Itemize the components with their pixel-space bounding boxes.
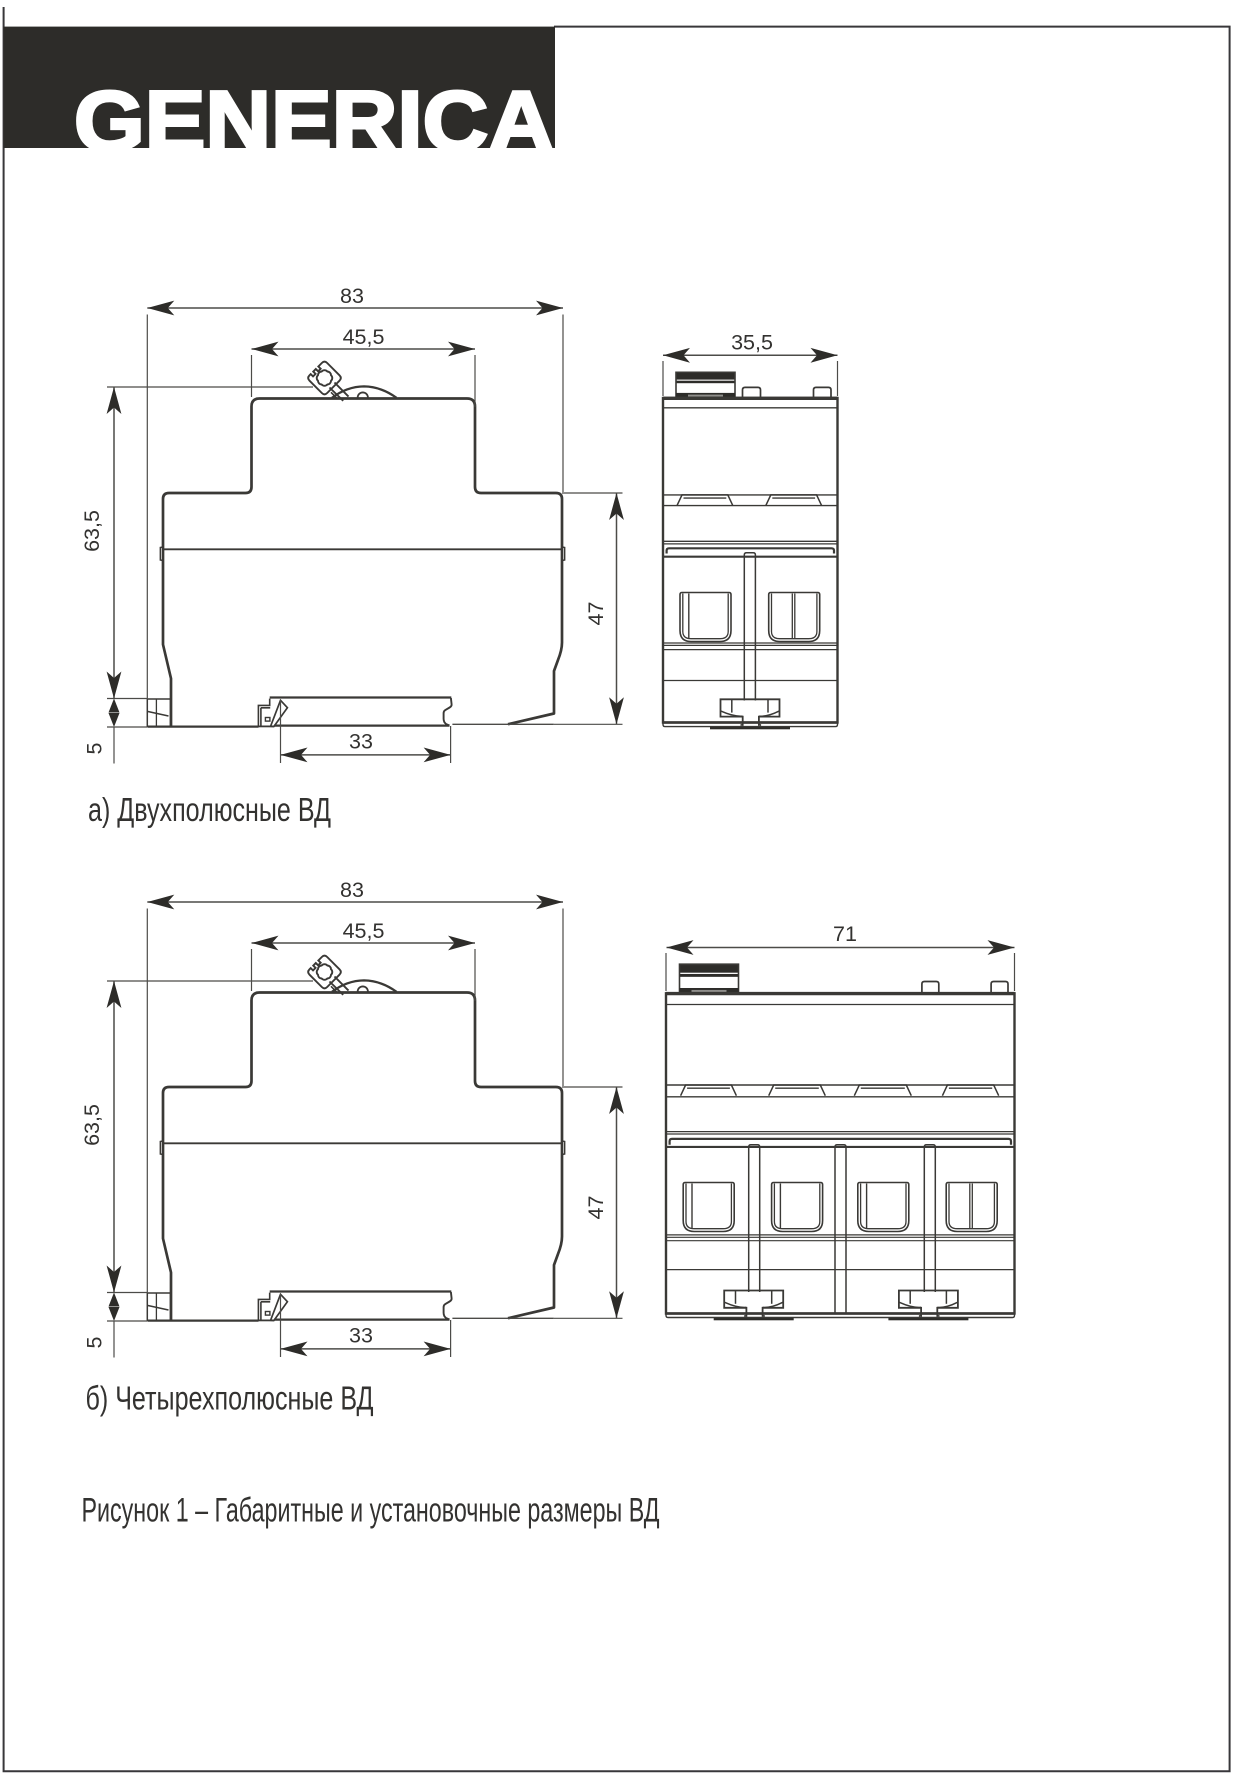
svg-text:GENERICA: GENERICA bbox=[74, 75, 554, 170]
svg-text:71: 71 bbox=[833, 922, 857, 946]
svg-text:а) Двухполюсные ВД: а) Двухполюсные ВД bbox=[88, 791, 331, 828]
svg-text:35,5: 35,5 bbox=[731, 331, 773, 355]
svg-text:Рисунок 1 – Габаритные и устан: Рисунок 1 – Габаритные и установочные ра… bbox=[82, 1492, 660, 1530]
svg-text:б) Четырехполюсные ВД: б) Четырехполюсные ВД bbox=[86, 1380, 374, 1417]
